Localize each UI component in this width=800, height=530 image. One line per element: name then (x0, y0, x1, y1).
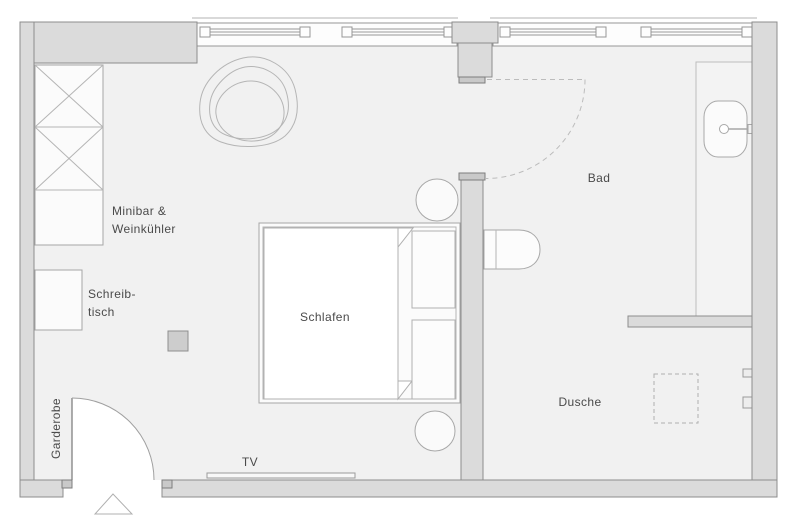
vanity-counter (696, 62, 754, 316)
left-wall (20, 22, 34, 480)
minibar-label-line1: Minibar & (112, 204, 166, 218)
desk (35, 270, 82, 330)
top-left-wall (20, 22, 197, 63)
minibar-label-line2: Weinkühler (112, 222, 176, 236)
bottom-wall-left (20, 480, 63, 497)
drain (720, 125, 729, 134)
floor-plan-drawing: Minibar & Weinkühler Schreib- tisch Gard… (0, 0, 800, 530)
window-pillar (452, 22, 498, 43)
shower-head-mount (743, 397, 752, 408)
side-table-top (416, 179, 458, 221)
wardrobe-cabinet (35, 65, 103, 245)
window-left (192, 18, 458, 46)
shower-partition-wall (628, 316, 752, 327)
bathroom-label: Bad (588, 171, 611, 185)
door-jamb-top (459, 77, 485, 83)
door-jamb-bottom (459, 173, 485, 180)
bed (259, 223, 460, 403)
right-wall (752, 22, 777, 497)
shower-label: Dusche (558, 395, 601, 409)
tv-board (207, 473, 355, 478)
side-table-bottom (415, 411, 455, 451)
entrance-arrow-icon (95, 494, 132, 514)
stool-square (168, 331, 188, 351)
pillow-top (412, 231, 455, 308)
window-pillar-lower (458, 43, 492, 77)
desk-label-line1: Schreib- (88, 287, 136, 301)
wardrobe-label: Garderobe (49, 398, 63, 459)
sleeping-room-label: Schlafen (300, 310, 350, 324)
floor-plan: Minibar & Weinkühler Schreib- tisch Gard… (0, 0, 800, 530)
window-right (490, 18, 757, 46)
bottom-wall (162, 480, 777, 497)
toilet (484, 230, 540, 269)
pillow-bottom (412, 320, 455, 399)
entrance-jamb-left (62, 480, 72, 488)
desk-label-line2: tisch (88, 305, 115, 319)
shower-valve (743, 369, 752, 377)
tv-label: TV (242, 455, 258, 469)
bathroom-partition-wall (461, 180, 483, 480)
entrance-jamb-right (162, 480, 172, 488)
